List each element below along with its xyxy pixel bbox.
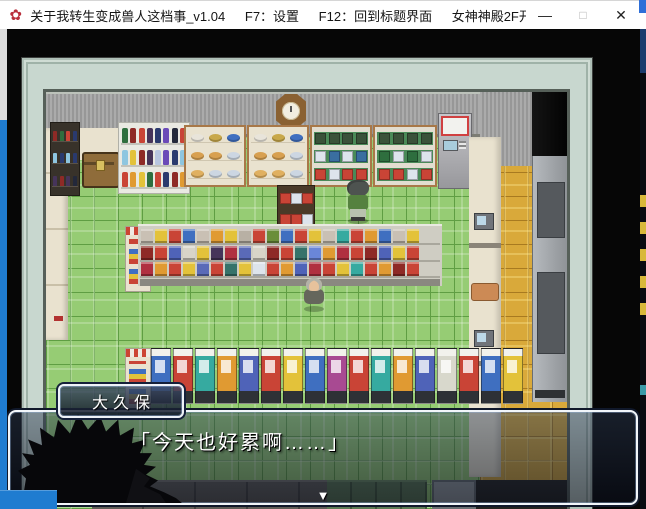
sprite-shadow	[304, 306, 324, 312]
counter-row	[188, 170, 242, 179]
onigiri-shelf-a	[310, 125, 372, 187]
food-item	[191, 170, 204, 178]
bottle-item	[139, 172, 145, 187]
itm-item	[253, 229, 265, 243]
freezer-door	[537, 182, 565, 238]
food-item	[227, 170, 240, 178]
counter-item	[54, 316, 63, 321]
itm-item	[295, 262, 307, 276]
shelf-row	[121, 150, 187, 167]
itm-item	[309, 229, 321, 243]
pack-item	[379, 133, 390, 144]
itm-item	[169, 229, 181, 243]
itm-item	[183, 229, 195, 243]
pack-item	[407, 151, 418, 162]
itm-item	[211, 246, 223, 260]
food-item	[209, 152, 222, 160]
food-item	[272, 134, 285, 142]
maximize-button[interactable]: □	[564, 2, 602, 28]
window-titlebar[interactable]: ✿ 关于我转生变成兽人这档事_v1.04 F7：设置 F12：回到标题界面 女神…	[0, 0, 646, 29]
vm-item	[481, 348, 501, 404]
atm-screen	[443, 140, 458, 151]
vm-item	[261, 348, 281, 404]
itm-item	[169, 246, 181, 260]
pack-item	[407, 169, 418, 180]
food-item	[290, 134, 303, 142]
itm-item	[393, 229, 405, 243]
shelf-row	[52, 176, 78, 187]
itm-item	[281, 262, 293, 276]
itm-item	[211, 229, 223, 243]
itm-item	[323, 262, 335, 276]
itm-item	[169, 262, 181, 276]
shelf-row	[121, 172, 187, 189]
elder-body	[304, 289, 324, 304]
desktop-corner-sliver	[639, 0, 646, 13]
food-counter-a	[184, 125, 246, 187]
pack-item	[315, 151, 326, 162]
clock-face	[282, 102, 300, 120]
itm-item	[267, 246, 279, 260]
pack-item	[315, 133, 326, 144]
vm-item	[393, 348, 413, 404]
itm-item	[197, 229, 209, 243]
itm-item	[225, 229, 237, 243]
atm-machine	[438, 113, 472, 189]
bottle-item	[163, 150, 169, 165]
taskbar-corner	[0, 490, 57, 509]
register-base	[469, 243, 501, 248]
atm-keypad	[459, 141, 466, 149]
vm-item	[283, 348, 303, 404]
food-item	[254, 134, 267, 142]
vending-machine-row	[151, 348, 523, 412]
vm-item	[415, 348, 435, 404]
dialogue-text: 「今天也好累啊……」	[130, 426, 350, 455]
counter-row	[188, 152, 242, 161]
itm-item	[365, 246, 377, 260]
itm-item	[155, 246, 167, 260]
bottle-item	[122, 172, 128, 187]
shelf-row	[377, 150, 433, 163]
right-strip-dash	[640, 276, 646, 288]
pack-item	[342, 133, 353, 144]
food-item	[209, 170, 222, 178]
minib-item	[73, 153, 77, 163]
pack-item	[421, 151, 432, 162]
minib-item	[53, 153, 57, 163]
bottle-item	[122, 150, 128, 165]
shelf-row	[140, 262, 440, 278]
pack-item	[356, 151, 367, 162]
itm-item	[225, 262, 237, 276]
minib-item	[73, 131, 77, 141]
itm-item	[183, 262, 195, 276]
right-strip-dash	[640, 303, 646, 315]
right-strip-navy	[640, 28, 646, 73]
itm-item	[337, 229, 349, 243]
itm-item	[281, 229, 293, 243]
itm-item	[183, 246, 195, 260]
pack-item	[329, 169, 340, 180]
itm-item	[155, 229, 167, 243]
vm-item	[239, 348, 259, 404]
itm-item	[407, 262, 419, 276]
desktop-left-strip	[0, 28, 7, 120]
aisle-shelf-row	[138, 224, 442, 286]
speaker-name-box: 大久保	[58, 384, 184, 418]
minib-item	[53, 176, 57, 186]
minimize-button[interactable]: —	[526, 2, 564, 28]
vm-item	[349, 348, 369, 404]
itm-item	[351, 229, 363, 243]
itm-item	[365, 262, 377, 276]
itm-item	[337, 262, 349, 276]
app-icon: ✿	[8, 7, 23, 24]
itm-item	[379, 229, 391, 243]
itm-item	[407, 229, 419, 243]
itm-item	[309, 262, 321, 276]
food-item	[227, 152, 240, 160]
pack-item	[291, 193, 302, 204]
food-counter-b	[247, 125, 309, 187]
window-controls: — □ ✕	[526, 2, 640, 28]
itm-item	[197, 246, 209, 260]
pack-item	[280, 193, 291, 204]
itm-item	[351, 246, 363, 260]
minib-item	[66, 153, 70, 163]
continue-arrow-icon: ▼	[317, 490, 330, 502]
counter-row	[188, 134, 242, 143]
vm-item	[459, 348, 479, 404]
shelf-row	[314, 132, 368, 145]
pack-item	[393, 133, 404, 144]
pack-item	[379, 151, 390, 162]
pack-item	[329, 133, 340, 144]
freezer-unit	[532, 156, 567, 402]
bottle-item	[147, 172, 153, 187]
itm-item	[281, 246, 293, 260]
bottle-item	[155, 128, 161, 143]
itm-item	[323, 229, 335, 243]
vm-item	[503, 348, 523, 404]
onigiri-shelf-b	[373, 125, 437, 187]
pack-item	[356, 169, 367, 180]
itm-item	[225, 246, 237, 260]
bottle-item	[172, 150, 178, 165]
drink-shelf-small	[50, 122, 80, 196]
bottle-shelf	[118, 122, 190, 194]
shelf-row	[140, 246, 440, 262]
bottle-item	[139, 128, 145, 143]
itm-item	[253, 246, 265, 260]
counter-row	[251, 134, 305, 143]
food-item	[290, 170, 303, 178]
food-item	[272, 170, 285, 178]
itm-item	[365, 229, 377, 243]
itm-item	[239, 229, 251, 243]
itm-item	[309, 246, 321, 260]
itm-item	[155, 262, 167, 276]
pack-item	[379, 169, 390, 180]
shelf-row	[314, 168, 368, 181]
clerk-shoes	[351, 217, 365, 221]
desktop-left-strip-blue	[0, 120, 7, 509]
vm-item	[327, 348, 347, 404]
itm-item	[239, 246, 251, 260]
right-strip-dash	[640, 195, 646, 207]
vm-item	[437, 348, 457, 404]
bottle-item	[147, 150, 153, 165]
bottle-item	[139, 150, 145, 165]
stool	[471, 283, 499, 301]
pack-item	[315, 169, 326, 180]
counter-row	[251, 152, 305, 161]
itm-item	[337, 246, 349, 260]
bottle-item	[172, 128, 178, 143]
bottle-item	[155, 172, 161, 187]
bottle-item	[172, 172, 178, 187]
bottle-item	[163, 128, 169, 143]
desktop-right-strip	[640, 28, 646, 509]
minib-item	[60, 176, 64, 186]
shelf-base	[140, 279, 440, 286]
pack-item	[342, 169, 353, 180]
itm-item	[239, 262, 251, 276]
itm-item	[141, 229, 153, 243]
food-item	[191, 152, 204, 160]
pack-item	[393, 151, 404, 162]
title-hint-f12: F12：回到标题界面	[319, 9, 432, 24]
itm-item	[211, 262, 223, 276]
right-strip-dash	[640, 385, 646, 395]
itm-item	[141, 262, 153, 276]
itm-item	[141, 246, 153, 260]
pack-item	[342, 151, 353, 162]
itm-item	[253, 262, 265, 276]
vm-item	[217, 348, 237, 404]
pack-item	[421, 169, 432, 180]
freezer-door	[537, 272, 565, 354]
shelf-row	[280, 193, 312, 204]
itm-item	[267, 262, 279, 276]
pack-item	[407, 133, 418, 144]
title-suffix: 女神神殿2F开永久...	[452, 9, 526, 24]
itm-item	[379, 262, 391, 276]
backroom-doorway	[532, 92, 567, 156]
elder-head	[306, 278, 322, 291]
pack-item	[329, 151, 340, 162]
shelf-row	[377, 132, 433, 145]
shelf-row	[377, 168, 433, 181]
vm-item	[195, 348, 215, 404]
treasure-chest	[82, 152, 120, 188]
minib-item	[60, 153, 64, 163]
bottle-item	[163, 172, 169, 187]
register-monitor	[474, 330, 494, 347]
shelf-row	[314, 150, 368, 163]
minib-item	[66, 131, 70, 141]
food-item	[227, 134, 240, 142]
pack-item	[393, 169, 404, 180]
shelf-row	[140, 229, 440, 245]
minib-item	[53, 131, 57, 141]
vm-item	[371, 348, 391, 404]
itm-item	[267, 229, 279, 243]
food-item	[272, 152, 285, 160]
minib-item	[66, 176, 70, 186]
food-item	[254, 170, 267, 178]
bottle-item	[130, 172, 136, 187]
bottle-item	[122, 128, 128, 143]
title-game-name: 关于我转生变成兽人这档事_v1.04	[30, 9, 225, 24]
register-monitor	[474, 213, 494, 230]
pack-item	[421, 133, 432, 144]
food-item	[290, 152, 303, 160]
screenshot-stage: ✿ 关于我转生变成兽人这档事_v1.04 F7：设置 F12：回到标题界面 女神…	[0, 0, 646, 509]
itm-item	[323, 246, 335, 260]
food-item	[209, 134, 222, 142]
bottle-item	[130, 128, 136, 143]
title-hint-f7: F7：设置	[245, 9, 299, 24]
itm-item	[295, 229, 307, 243]
itm-item	[393, 246, 405, 260]
minib-item	[73, 176, 77, 186]
food-item	[254, 152, 267, 160]
bottle-item	[147, 128, 153, 143]
itm-item	[393, 262, 405, 276]
shelf-row	[121, 128, 187, 145]
counter-row	[251, 170, 305, 179]
itm-item	[351, 262, 363, 276]
pack-item	[356, 133, 367, 144]
itm-item	[407, 246, 419, 260]
npc-elder	[302, 278, 326, 312]
window-title: 关于我转生变成兽人这档事_v1.04 F7：设置 F12：回到标题界面 女神神殿…	[30, 6, 526, 25]
itm-item	[197, 262, 209, 276]
speaker-name: 大久保	[87, 389, 155, 413]
pack-item	[302, 193, 313, 204]
right-strip-dash	[640, 222, 646, 234]
bottle-item	[130, 150, 136, 165]
vm-item	[305, 348, 325, 404]
wall-clock-icon	[276, 94, 306, 128]
right-strip-dash	[640, 249, 646, 261]
close-button[interactable]: ✕	[602, 2, 640, 28]
itm-item	[379, 246, 391, 260]
itm-item	[295, 246, 307, 260]
minib-item	[60, 131, 64, 141]
bottle-item	[155, 150, 161, 165]
shelf-row	[52, 153, 78, 164]
clerk-shirt	[348, 195, 368, 210]
npc-clerk	[346, 180, 370, 224]
shelf-row	[52, 131, 78, 142]
food-item	[191, 134, 204, 142]
dialogue-window[interactable]: 「今天也好累啊……」 ▼	[8, 410, 638, 505]
